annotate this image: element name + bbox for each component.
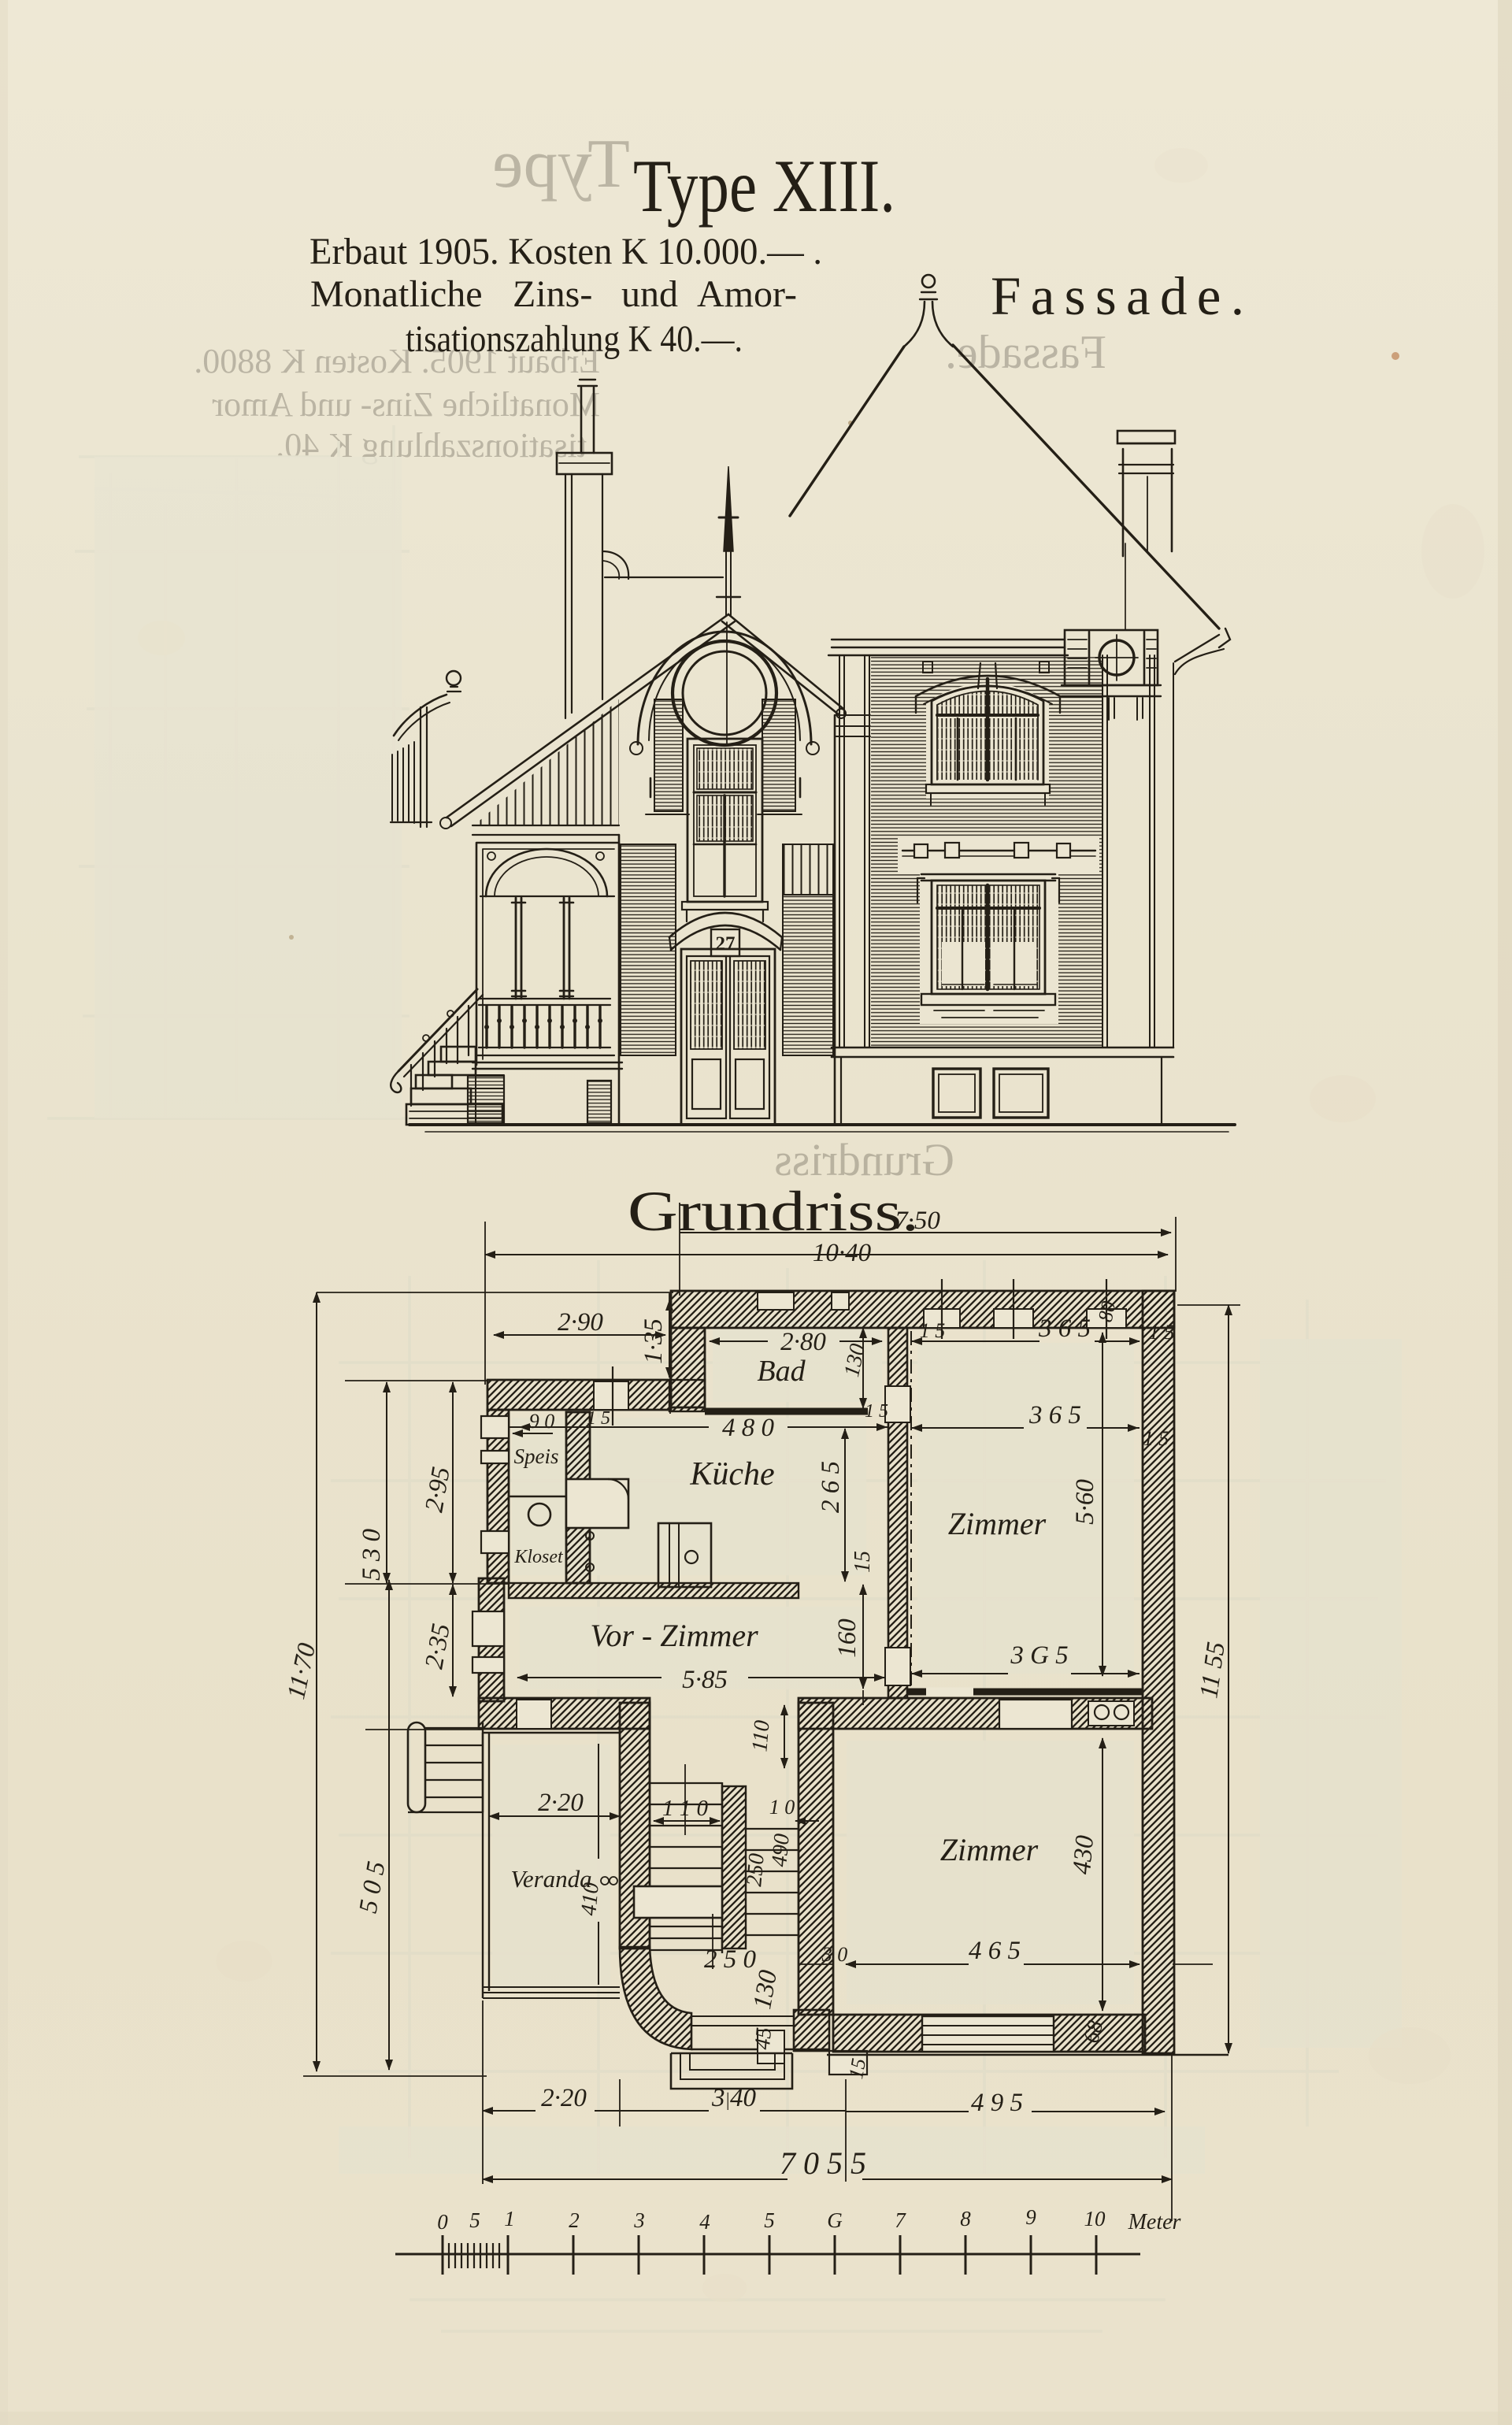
svg-text:tisationszahlung K 40.—.: tisationszahlung K 40.—. [406,318,743,360]
svg-text:1 0: 1 0 [769,1796,795,1819]
svg-text:430: 430 [1068,1834,1099,1875]
svg-text:1 5: 1 5 [1143,1427,1169,1450]
svg-text:Bad: Bad [757,1355,806,1388]
svg-text:4 6 5: 4 6 5 [969,1937,1021,1965]
svg-text:Fassade.: Fassade. [945,326,1106,378]
svg-text:Type XIII.: Type XIII. [633,144,895,228]
svg-text:Type: Type [492,126,630,202]
svg-text:5·85: 5·85 [682,1666,728,1694]
svg-text:1 5: 1 5 [920,1319,946,1342]
svg-text:4: 4 [699,2210,710,2234]
svg-text:3 6 5: 3 6 5 [1028,1401,1081,1429]
svg-text:3 6 5: 3 6 5 [1038,1314,1091,1343]
svg-text:Monatliche Zins- und Amor: Monatliche Zins- und Amor [212,385,600,424]
svg-text:1 1 0: 1 1 0 [662,1796,709,1821]
svg-text:7: 7 [895,2208,906,2232]
svg-text:2: 2 [569,2208,580,2232]
svg-text:1: 1 [504,2207,515,2230]
svg-text:3 G 5: 3 G 5 [1010,1641,1068,1670]
svg-text:MonatlicheZins-undAmor-: MonatlicheZins-undAmor- [310,273,797,315]
svg-text:3|40: 3|40 [711,2084,757,2112]
svg-text:3: 3 [633,2208,645,2232]
svg-text:5·60: 5·60 [1071,1479,1099,1525]
svg-text:0: 0 [437,2210,448,2234]
svg-text:2·90: 2·90 [558,1308,603,1337]
svg-text:250: 250 [742,1852,769,1888]
svg-text:7·50: 7·50 [895,1207,940,1235]
svg-text:9 0: 9 0 [529,1410,555,1433]
svg-text:Erbaut 1905. Kosten K 10.000.—: Erbaut 1905. Kosten K 10.000.— . [309,231,822,273]
svg-text:2·20: 2·20 [541,2084,587,2112]
svg-text:Zimmer: Zimmer [948,1506,1047,1541]
svg-text:7 0 5 5: 7 0 5 5 [780,2145,866,2181]
svg-text:45: 45 [750,2026,776,2051]
svg-text:Vor - Zimmer: Vor - Zimmer [590,1618,758,1653]
svg-text:2 5 0: 2 5 0 [704,1945,757,1974]
svg-text:Kloset: Kloset [513,1547,564,1567]
svg-text:10: 10 [1084,2207,1106,2230]
svg-text:Grundriss: Grundriss [774,1134,954,1185]
svg-text:1 5: 1 5 [865,1401,888,1422]
svg-text:5 3 0: 5 3 0 [358,1529,386,1581]
svg-text:110: 110 [747,1719,774,1752]
svg-text:10·40: 10·40 [813,1239,872,1267]
svg-text:G: G [827,2208,843,2232]
svg-text:4 8 0: 4 8 0 [722,1414,775,1442]
svg-text:2·80: 2·80 [780,1328,826,1356]
svg-text:15: 15 [850,1551,875,1573]
svg-text:3 0: 3 0 [821,1943,848,1966]
svg-text:410: 410 [576,1882,604,1917]
svg-text:8: 8 [960,2207,971,2230]
svg-text:1 5: 1 5 [587,1408,610,1429]
svg-text:27: 27 [716,933,736,955]
svg-text:15: 15 [844,2056,870,2081]
svg-text:2·20: 2·20 [538,1789,584,1817]
svg-text:4 9 5: 4 9 5 [971,2089,1023,2117]
svg-text:Küche: Küche [689,1456,774,1492]
svg-text:160: 160 [833,1619,862,1658]
svg-text:1 5: 1 5 [1149,1321,1175,1344]
svg-text:9: 9 [1025,2205,1036,2229]
svg-text:1·35: 1·35 [639,1318,668,1364]
svg-text:490: 490 [767,1833,795,1868]
svg-text:Meter: Meter [1128,2210,1181,2234]
svg-text:2 6 5: 2 6 5 [817,1461,845,1513]
svg-text:Speis: Speis [514,1444,559,1468]
svg-text:5: 5 [469,2208,480,2232]
svg-text:5: 5 [764,2208,775,2232]
svg-text:Zimmer: Zimmer [940,1832,1039,1867]
